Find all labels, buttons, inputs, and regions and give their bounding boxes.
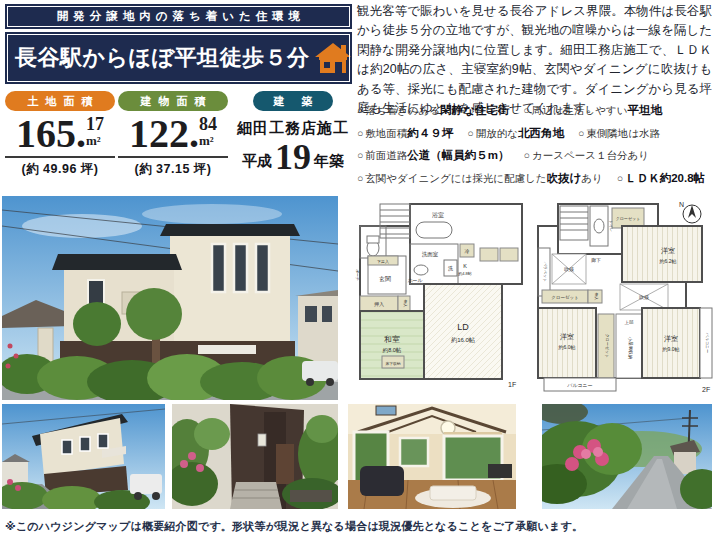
room-label-porch: ポーチ — [355, 269, 360, 281]
land-area-fraction: 17 m² — [86, 116, 104, 148]
building-area-tsubo: (約 37.15 坪) — [118, 161, 228, 178]
bullet-circle-icon: ○ — [578, 127, 584, 139]
construction-badge: 建 築 — [253, 91, 333, 111]
bullet-circle-icon: ○ — [357, 127, 363, 139]
feature-row: ○落ち着きのある閑静な住宅街○周辺は生活しやすい平坦地 — [357, 103, 713, 117]
build-year: 平成 19 年築 — [232, 140, 354, 174]
room-label-toilet: トイレ — [609, 220, 614, 232]
room-label-fridge: 冷 — [465, 248, 470, 254]
room-label-washroom: 洗面室 — [422, 251, 439, 258]
building-area-spec: 建物面積 122. 84 m² (約 37.15 坪) — [118, 91, 228, 178]
room-label-bedroom1: 洋室 — [661, 247, 675, 255]
feature-item: ○玄関やダイニングには採光に配慮した吹抜けあり — [357, 172, 603, 184]
room-label-washitsu: 和室 — [384, 335, 400, 344]
room-label-void2: 吹抜 — [639, 294, 649, 300]
room-label-balcony-right: バルコニー — [705, 332, 710, 353]
description-paragraph: 観光客等で賑わいを見せる長谷アドレス界隈。本物件は長谷駅から徒歩５分の立地ですが… — [357, 2, 712, 118]
room-label-ld: LD — [457, 322, 469, 332]
flyer-page: 開発分譲地内の落ち着いた住環境 長谷駅からほぼ平坦徒歩５分 観光客等で賑わいを見… — [0, 0, 714, 541]
room-label-ld-size: 約16.0帖 — [451, 336, 475, 344]
room-label-attic-upper: 上部 — [625, 320, 635, 325]
compass-icon: N — [679, 201, 701, 223]
room-label-floor-storage: 床下収納 — [385, 361, 400, 366]
room-label-kitchen-size: 約4.8帖 — [458, 271, 472, 276]
room-label-bedroom1-size: 約6.2帖 — [660, 258, 677, 265]
room-label-void1: 吹抜 — [564, 266, 574, 272]
room-label-shoebox: 下足入 — [377, 259, 389, 264]
room-label-washitsu-size: 約8.0帖 — [382, 347, 402, 354]
building-area-fraction: 84 m² — [199, 116, 217, 148]
building-area-badge: 建物面積 — [118, 91, 228, 111]
room-label-hall: ホール — [407, 277, 422, 283]
room-label-attic: 小屋裏収納 — [628, 337, 633, 360]
feature-row: ○玄関やダイニングには採光に配慮した吹抜けあり○ＬＤＫ約20.8帖 — [357, 171, 713, 185]
page-title: 長谷駅からほぼ平坦徒歩５分 — [15, 43, 310, 73]
title-band: 長谷駅からほぼ平坦徒歩５分 — [5, 32, 352, 84]
feature-item: ○前面道路公道（幅員約５m） — [357, 149, 510, 161]
header-banner: 開発分譲地内の落ち着いた住環境 長谷駅からほぼ平坦徒歩５分 — [5, 4, 352, 84]
room-label-parapet: パラペット — [543, 261, 548, 282]
floorplan-1f: 浴室 洗面室 洗 冷 K 約4.8帖 下足入 玄関 ホール ポーチ 押入 物入 … — [352, 196, 528, 396]
bullet-circle-icon: ○ — [357, 104, 363, 116]
room-label-balcony-bottom: バルコニー — [566, 382, 592, 388]
feature-item: ○東側隣地は水路 — [578, 127, 660, 139]
feature-item: ○カースペース１台分あり — [524, 149, 649, 161]
construction-spec: 建 築 細田工務店施工 平成 19 年築 — [232, 91, 354, 174]
build-era: 平成 — [242, 152, 272, 174]
house-icon — [314, 41, 352, 75]
bullet-circle-icon: ○ — [357, 172, 363, 184]
room-label-entrance: 玄関 — [379, 275, 391, 282]
room-label-bath: 浴室 — [432, 211, 444, 219]
floorplan-2f: N トイレ ク — [530, 196, 714, 396]
room-label-kitchen: K — [463, 263, 467, 269]
room-label-bedroom2: 洋室 — [560, 333, 574, 341]
building-area-number: 122. — [129, 114, 199, 154]
land-area-spec: 土地面積 165. 17 m² (約 49.96 坪) — [5, 91, 115, 178]
feature-item: ○敷地面積約４９坪 — [357, 127, 453, 139]
thumb-photo-exterior-corner — [2, 404, 165, 509]
bullet-circle-icon: ○ — [523, 104, 529, 116]
floor-label-1f: 1F — [508, 381, 516, 388]
main-exterior-photo — [2, 196, 338, 400]
land-area-decimal: 17 — [86, 116, 104, 133]
room-label-bedroom3-size: 約9.0帖 — [663, 346, 680, 353]
room-label-bedroom2-size: 約6.0帖 — [559, 344, 576, 351]
land-area-tsubo: (約 49.96 坪) — [5, 161, 115, 178]
thumb-photo-entrance-approach — [172, 404, 338, 509]
floor-label-2f: 2F — [702, 386, 710, 393]
building-area-value: 122. 84 m² — [118, 111, 228, 158]
feature-item: ○落ち着きのある閑静な住宅街 — [357, 104, 509, 116]
room-label-closet-top: クローゼット — [616, 216, 640, 221]
feature-row: ○敷地面積約４９坪○開放的な北西角地○東側隣地は水路 — [357, 126, 713, 140]
bullet-circle-icon: ○ — [524, 149, 530, 161]
room-label-washer: 洗 — [448, 265, 453, 272]
land-area-unit: m² — [86, 133, 101, 148]
room-label-corridor: 廊下 — [591, 257, 601, 263]
feature-item: ○ＬＤＫ約20.8帖 — [617, 172, 705, 184]
feature-item: ○周辺は生活しやすい平坦地 — [523, 104, 662, 116]
land-area-number: 165. — [16, 114, 86, 154]
tagline-band: 開発分譲地内の落ち着いた住環境 — [5, 4, 352, 29]
bullet-circle-icon: ○ — [617, 172, 623, 184]
features-list: ○落ち着きのある閑静な住宅街○周辺は生活しやすい平坦地○敷地面積約４９坪○開放的… — [357, 103, 713, 193]
bullet-circle-icon: ○ — [357, 149, 363, 161]
room-label-bedroom3: 洋室 — [664, 335, 678, 343]
thumb-photo-street-view — [542, 404, 712, 509]
feature-item: ○開放的な北西角地 — [467, 127, 564, 139]
land-area-value: 165. 17 m² — [5, 111, 115, 158]
room-label-oshiire: 押入 — [374, 301, 384, 307]
room-label-monoire: 物入 — [403, 300, 408, 308]
thumb-photo-living-interior — [348, 404, 516, 509]
build-year-number: 19 — [275, 140, 311, 174]
tagline-text: 開発分譲地内の落ち着いた住環境 — [52, 9, 306, 24]
building-area-decimal: 84 — [199, 116, 217, 133]
bullet-circle-icon: ○ — [467, 127, 473, 139]
compass-n: N — [679, 201, 684, 208]
feature-row: ○前面道路公道（幅員約５m）○カースペース１台分あり — [357, 148, 713, 162]
building-area-unit: m² — [199, 133, 214, 148]
room-label-closet2: クローゼット — [551, 295, 579, 300]
disclaimer-text: ※このハウジングマップは概要紹介図です。形状等が現況と異なる場合は現況優先となる… — [5, 519, 583, 534]
build-year-suffix: 年築 — [314, 152, 344, 174]
builder-name: 細田工務店施工 — [232, 119, 354, 138]
room-label-monoire-2f: 物入 — [594, 293, 599, 301]
land-area-badge: 土地面積 — [5, 91, 115, 111]
room-label-closet3: クローゼット — [605, 334, 610, 358]
